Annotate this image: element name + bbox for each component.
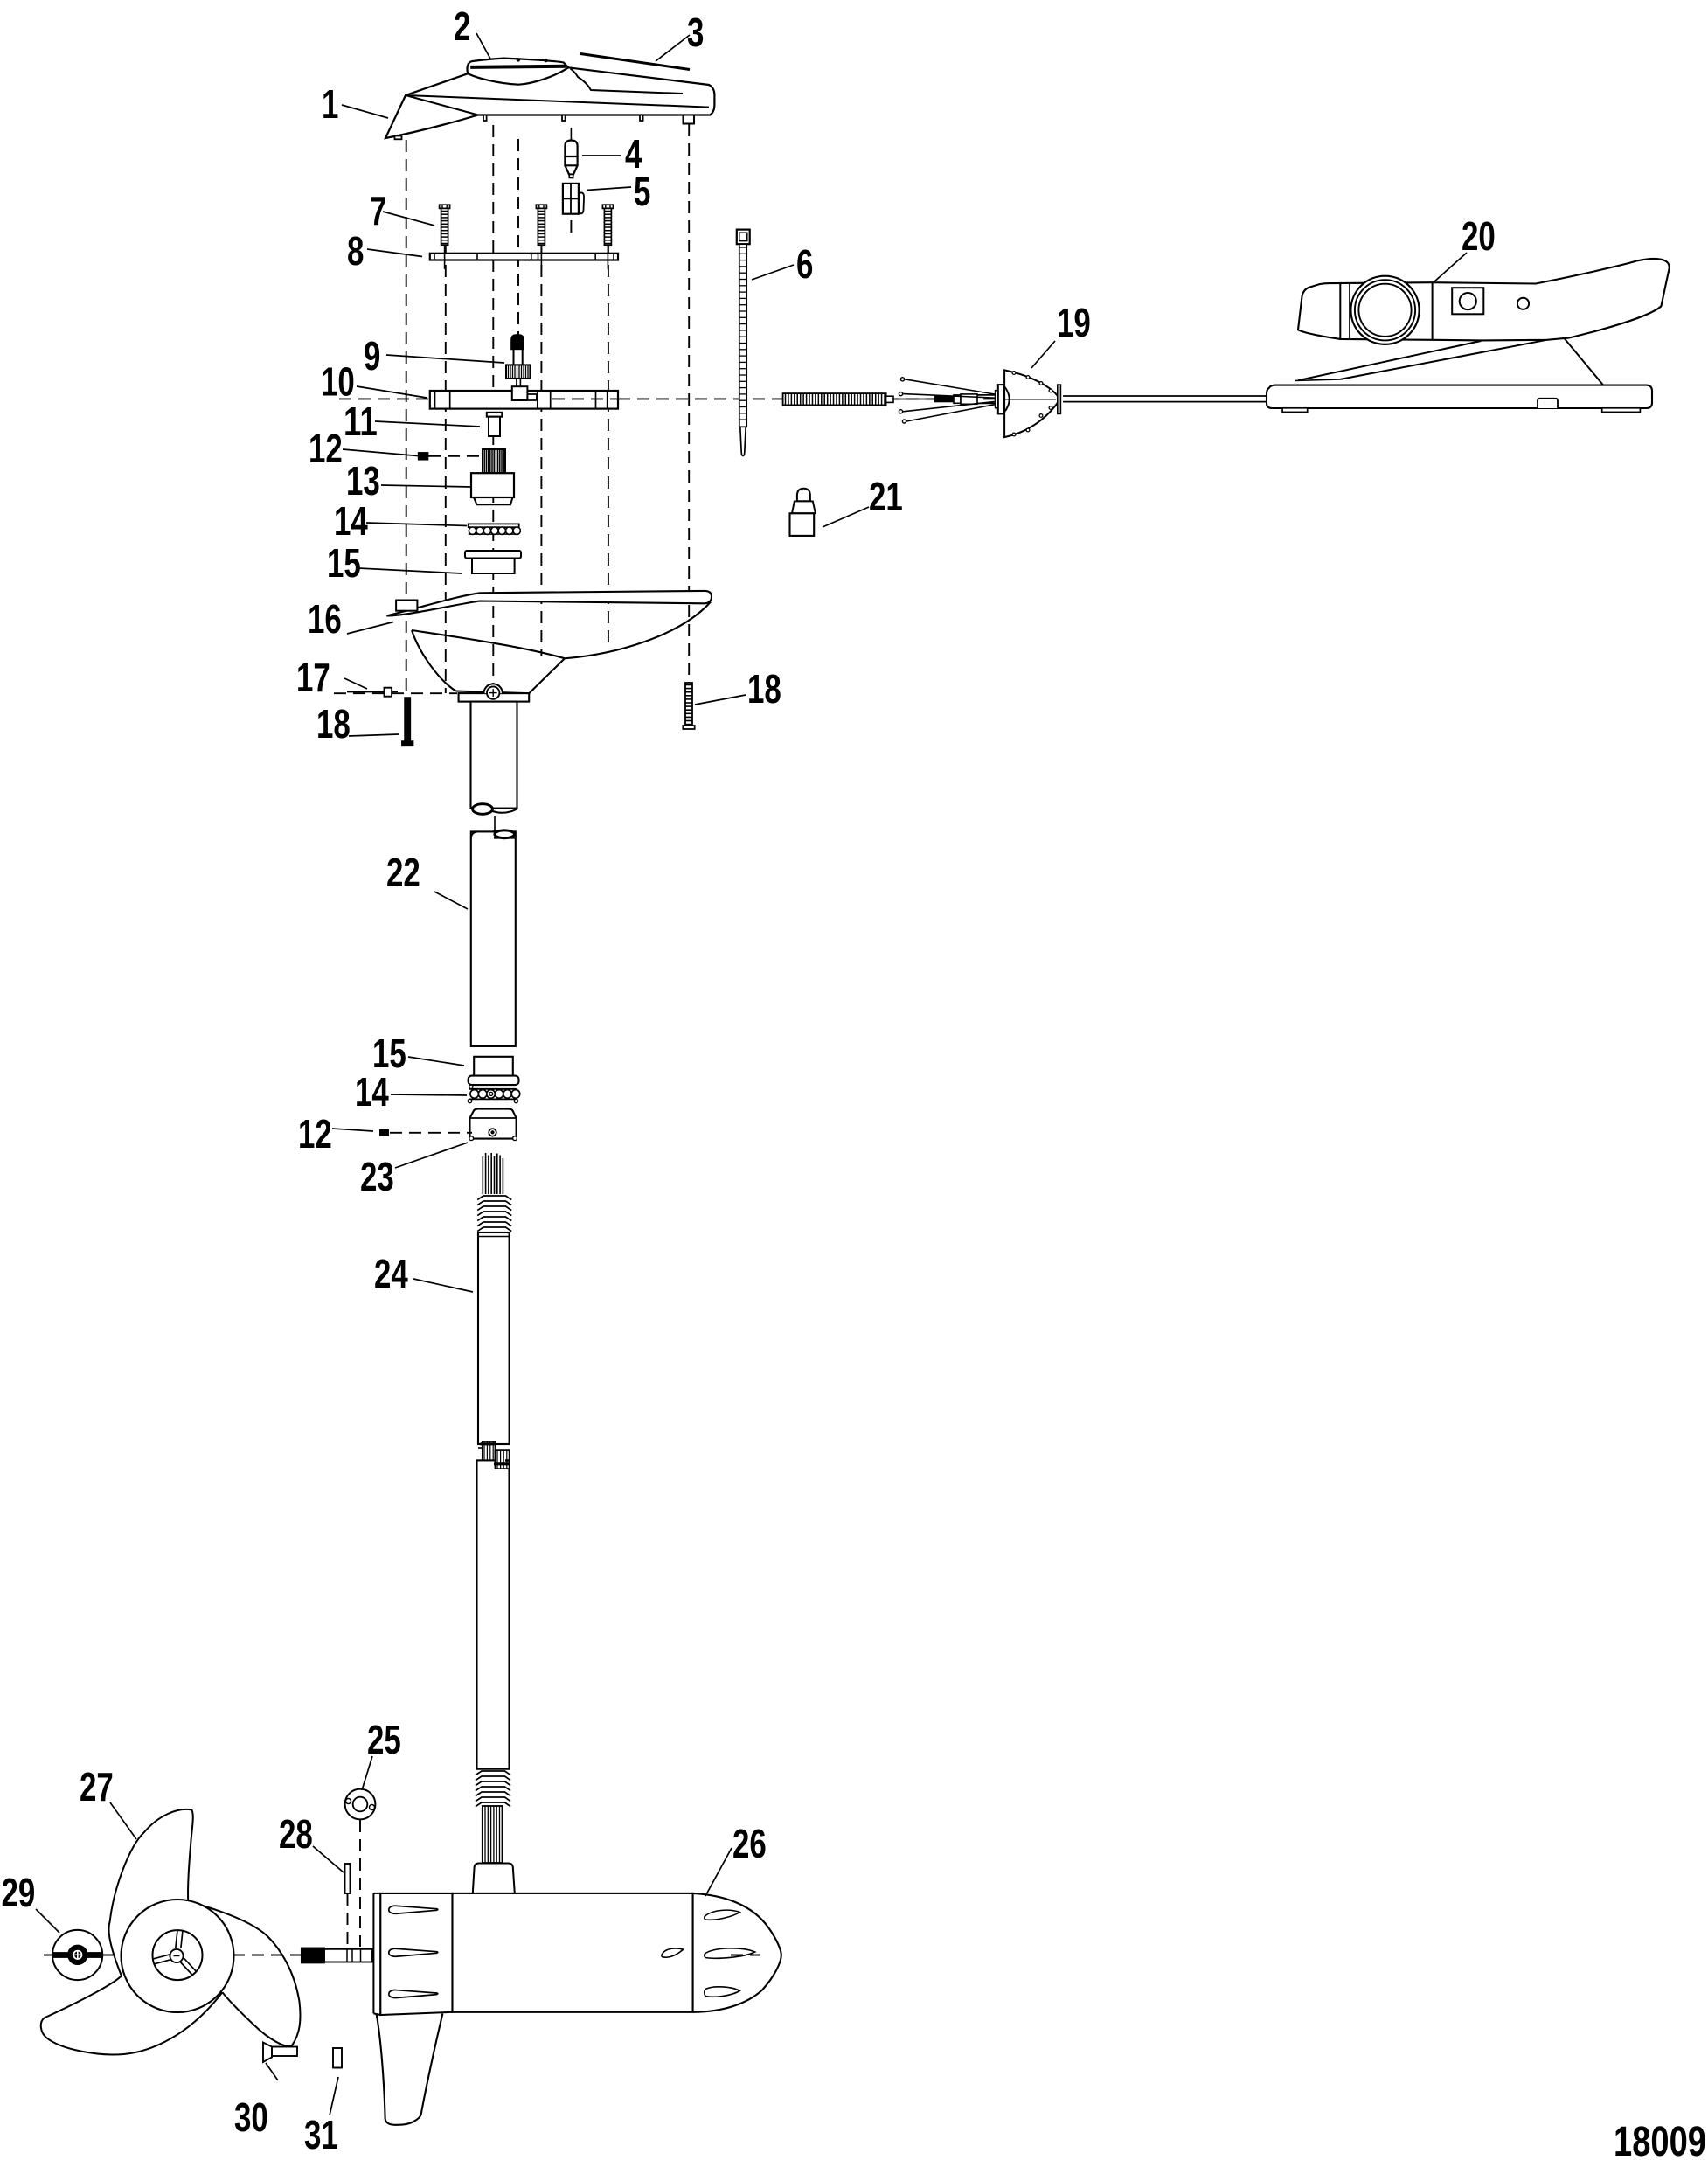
svg-text:19: 19 [1057, 300, 1091, 345]
svg-text:15: 15 [327, 540, 361, 586]
svg-text:12: 12 [309, 426, 343, 471]
svg-text:14: 14 [355, 1069, 389, 1115]
svg-text:16: 16 [308, 596, 342, 642]
svg-text:18: 18 [747, 666, 781, 712]
svg-text:30: 30 [234, 2094, 268, 2140]
svg-text:29: 29 [2, 1870, 36, 1915]
svg-text:7: 7 [370, 188, 386, 233]
svg-text:5: 5 [634, 169, 650, 214]
svg-text:13: 13 [346, 458, 380, 504]
svg-text:6: 6 [796, 241, 813, 287]
svg-text:18: 18 [316, 701, 351, 747]
svg-text:11: 11 [344, 399, 378, 444]
svg-text:1: 1 [322, 81, 338, 127]
svg-text:18009: 18009 [1614, 2119, 1706, 2160]
svg-text:3: 3 [687, 10, 704, 55]
svg-text:20: 20 [1462, 213, 1496, 259]
svg-text:12: 12 [298, 1111, 332, 1156]
svg-text:31: 31 [304, 2112, 338, 2157]
svg-text:24: 24 [374, 1251, 408, 1296]
svg-text:22: 22 [386, 850, 420, 895]
svg-text:10: 10 [321, 359, 355, 405]
svg-text:26: 26 [732, 1821, 767, 1866]
svg-text:8: 8 [347, 228, 364, 274]
svg-text:27: 27 [80, 1764, 114, 1809]
svg-text:28: 28 [279, 1811, 313, 1857]
svg-text:25: 25 [367, 1717, 401, 1762]
svg-text:23: 23 [360, 1154, 394, 1199]
svg-text:14: 14 [334, 498, 368, 544]
svg-text:9: 9 [364, 333, 380, 379]
svg-text:17: 17 [296, 655, 330, 700]
svg-text:2: 2 [454, 3, 470, 49]
svg-text:21: 21 [869, 474, 903, 519]
